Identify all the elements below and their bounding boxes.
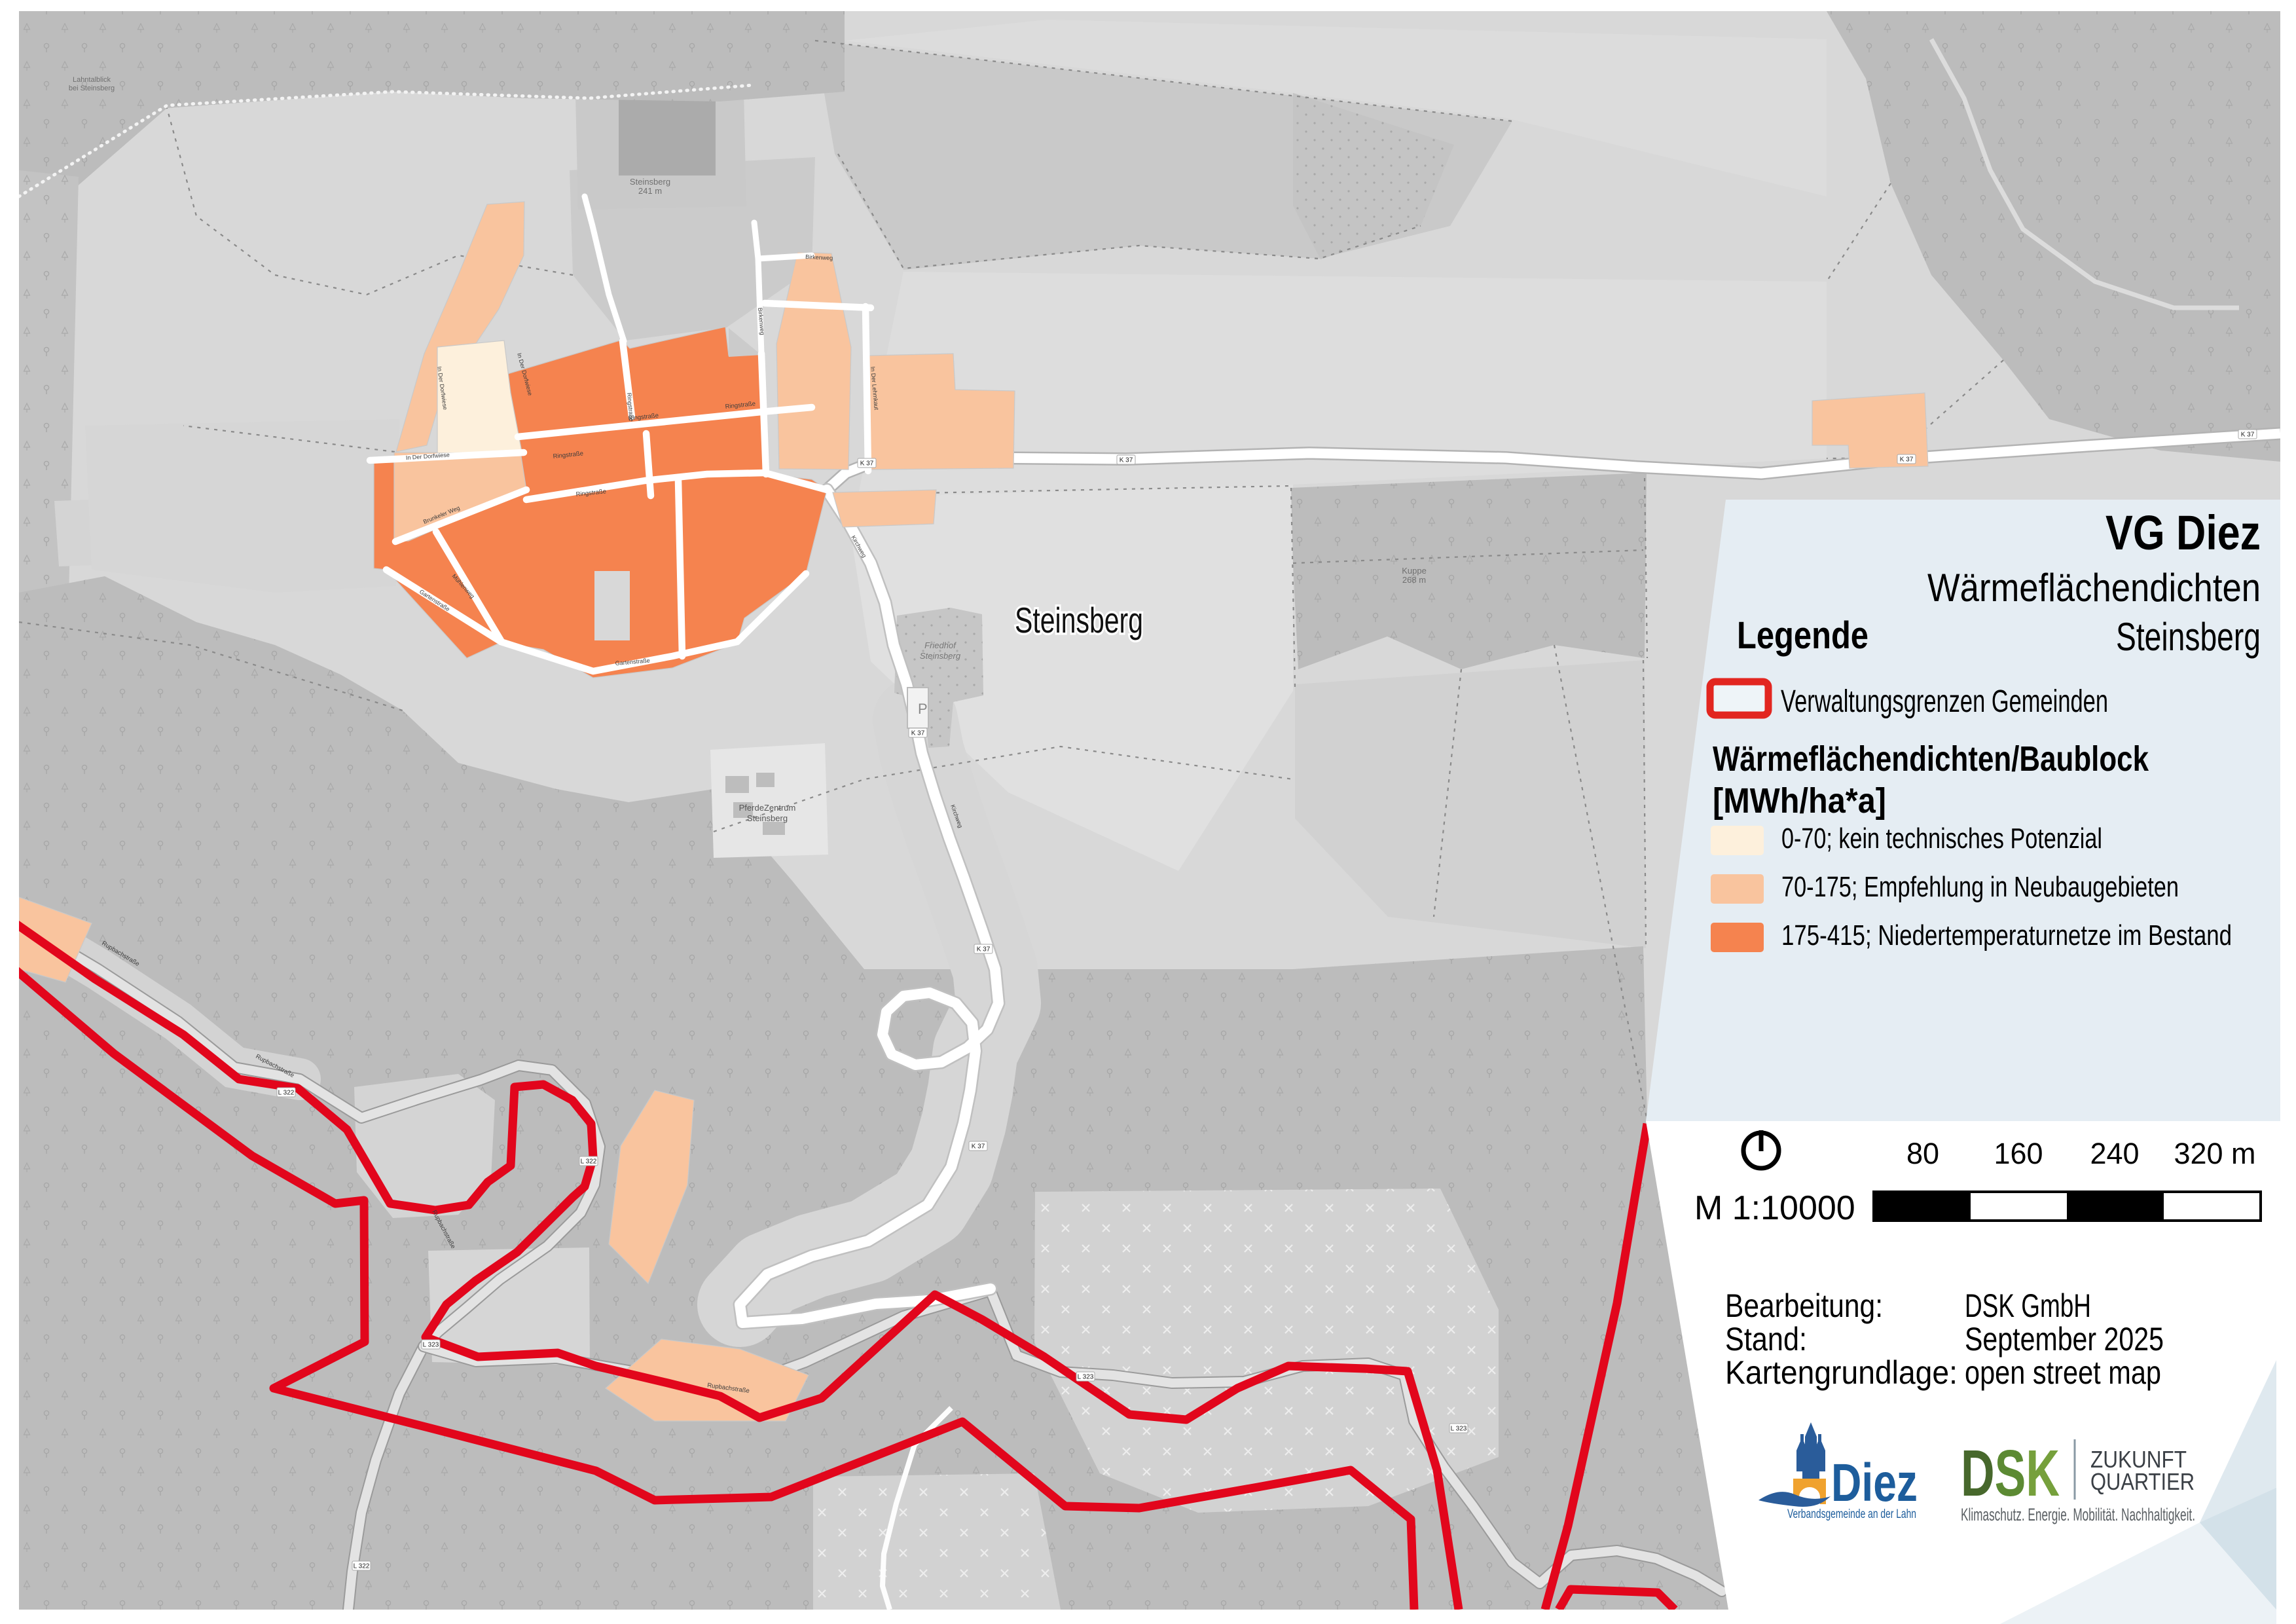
svg-text:Steinsberg: Steinsberg <box>630 177 670 187</box>
svg-text:Wärmeflächendichten: Wärmeflächendichten <box>1927 566 2261 610</box>
svg-text:L 322: L 322 <box>354 1563 370 1570</box>
svg-text:Steinsberg: Steinsberg <box>747 813 788 823</box>
svg-text:K 37: K 37 <box>860 460 874 468</box>
svg-text:Friedhof: Friedhof <box>924 640 957 650</box>
svg-text:K 37: K 37 <box>1900 456 1914 464</box>
svg-text:0-70; kein technisches Potenzi: 0-70; kein technisches Potenzial <box>1781 822 2102 855</box>
svg-text:Diez: Diez <box>1831 1453 1918 1513</box>
svg-text:K 37: K 37 <box>2241 432 2255 439</box>
svg-text:320 m: 320 m <box>2174 1137 2255 1170</box>
svg-text:Bearbeitung:: Bearbeitung: <box>1725 1287 1883 1324</box>
svg-text:268 m: 268 m <box>1402 575 1426 585</box>
svg-text:175-415; Niedertemperaturnetze: 175-415; Niedertemperaturnetze im Bestan… <box>1781 919 2232 951</box>
svg-text:DSK: DSK <box>1961 1437 2060 1510</box>
svg-text:Legende: Legende <box>1737 614 1868 657</box>
svg-text:160: 160 <box>1994 1137 2043 1170</box>
svg-text:[MWh/ha*a]: [MWh/ha*a] <box>1713 781 1886 821</box>
svg-text:Steinsberg: Steinsberg <box>2116 615 2261 659</box>
svg-text:VG Diez: VG Diez <box>2105 506 2261 560</box>
svg-text:PferdeZentrum: PferdeZentrum <box>739 803 796 813</box>
svg-text:80: 80 <box>1906 1137 1939 1170</box>
svg-text:Wärmeflächendichten/Baublock: Wärmeflächendichten/Baublock <box>1713 739 2149 779</box>
svg-text:Stand:: Stand: <box>1725 1321 1807 1357</box>
svg-text:L 322: L 322 <box>278 1090 295 1097</box>
svg-text:QUARTIER: QUARTIER <box>2090 1468 2195 1495</box>
svg-text:L 323: L 323 <box>1078 1374 1094 1381</box>
svg-text:Kartengrundlage:: Kartengrundlage: <box>1725 1354 1958 1391</box>
svg-text:K 37: K 37 <box>911 730 925 737</box>
svg-text:241 m: 241 m <box>638 186 662 196</box>
svg-text:bei Steinsberg: bei Steinsberg <box>69 84 115 92</box>
svg-text:DSK GmbH: DSK GmbH <box>1965 1287 2091 1324</box>
svg-text:L 323: L 323 <box>423 1342 439 1349</box>
svg-text:P: P <box>918 701 928 717</box>
svg-text:K 37: K 37 <box>977 946 991 953</box>
svg-text:Steinsberg: Steinsberg <box>1015 600 1143 640</box>
svg-text:September 2025: September 2025 <box>1965 1321 2164 1357</box>
svg-text:L 322: L 322 <box>581 1158 597 1166</box>
svg-text:Verbandsgemeinde an der Lahn: Verbandsgemeinde an der Lahn <box>1787 1507 1916 1521</box>
svg-text:L 323: L 323 <box>1451 1426 1467 1433</box>
svg-text:Lahntalblick: Lahntalblick <box>73 76 111 84</box>
svg-text:M 1:10000: M 1:10000 <box>1694 1189 1855 1227</box>
svg-text:Kuppe: Kuppe <box>1402 566 1427 576</box>
svg-text:Klimaschutz. Energie. Mobilitä: Klimaschutz. Energie. Mobilität. Nachhal… <box>1961 1505 2195 1524</box>
svg-text:240: 240 <box>2090 1137 2139 1170</box>
svg-text:Steinsberg: Steinsberg <box>920 651 961 661</box>
svg-text:70-175; Empfehlung in Neubauge: 70-175; Empfehlung in Neubaugebieten <box>1781 871 2179 903</box>
svg-text:open street map: open street map <box>1965 1354 2161 1391</box>
svg-text:K 37: K 37 <box>1120 457 1133 464</box>
svg-text:Verwaltungsgrenzen Gemeinden: Verwaltungsgrenzen Gemeinden <box>1781 684 2108 719</box>
svg-text:K 37: K 37 <box>972 1143 985 1151</box>
